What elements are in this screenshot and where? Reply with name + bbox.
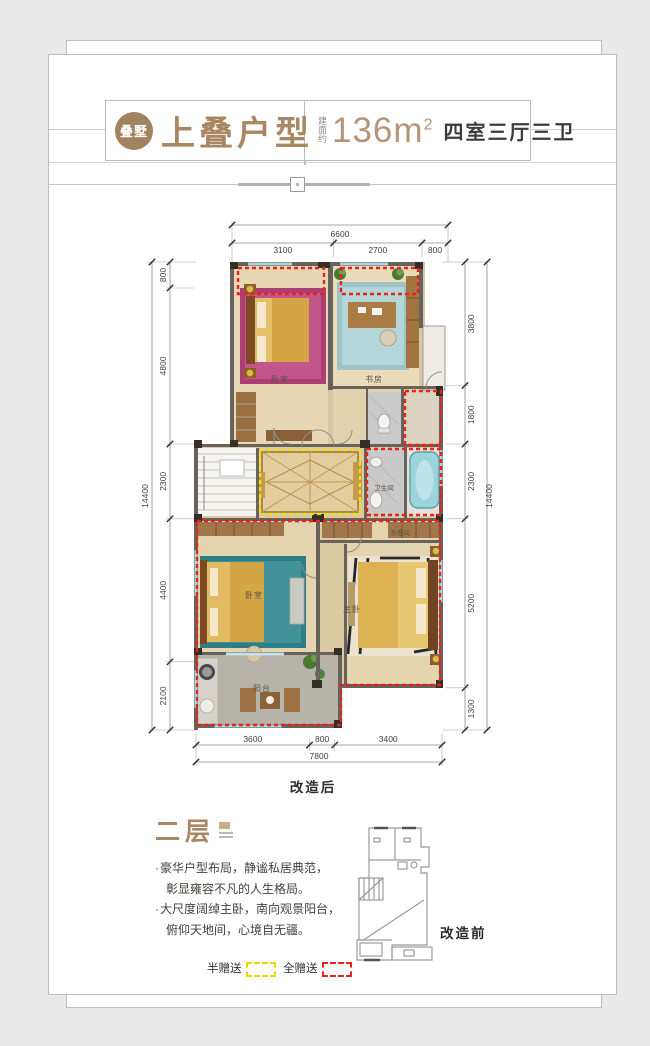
legend-full-gift-label: 全赠送 <box>283 960 318 976</box>
description-bullets: ·豪华户型布局，静谧私居典范， 彰显雍容不凡的人生格局。 ·大尺度阔绰主卧，南向… <box>155 858 380 940</box>
dim-top-seg: 800 <box>428 245 442 255</box>
room-label-bathroom: 卫生间 <box>374 483 394 492</box>
bullet-item: ·豪华户型布局，静谧私居典范， 彰显雍容不凡的人生格局。 <box>155 858 380 899</box>
dim-right-seg: 3800 <box>466 314 476 333</box>
dim-bottom-overall: 7800 <box>310 751 329 761</box>
dim-top-overall: 6600 <box>331 229 350 239</box>
bullet-dot: · <box>155 902 159 916</box>
dim-right-seg: 1300 <box>466 699 476 718</box>
dim-top-seg: 2700 <box>368 245 387 255</box>
legend-full-gift-swatch <box>322 962 352 977</box>
seal-text: 叠墅 <box>120 121 148 140</box>
dim-bottom-seg: 3400 <box>379 734 398 744</box>
dim-left-overall: 14400 <box>140 484 150 508</box>
header-box: 叠墅 上叠户型 建面约 136m2 四室三厅三卫 <box>105 100 531 161</box>
dim-bottom-seg: 800 <box>315 734 329 744</box>
area-prefix-label: 建面约 <box>318 117 329 144</box>
room-label-cloakroom: 衣帽间 <box>390 528 410 537</box>
floor-title-ornament <box>219 822 233 840</box>
plan-caption-before: 改造前 <box>440 922 487 942</box>
header-right: 建面约 136m2 四室三厅三卫 <box>305 101 575 160</box>
plan-body: 卧室 书房 卫生间 衣帽间 卧室 主卧 阳台 <box>194 262 445 730</box>
room-label-master: 主卧 <box>343 604 361 614</box>
hall-parquet <box>258 452 362 512</box>
rooms-spec: 四室三厅三卫 <box>443 116 575 145</box>
legend-half-gift-swatch <box>246 962 276 977</box>
dim-left-seg: 4800 <box>158 356 168 375</box>
dim-left-seg: 800 <box>158 268 168 282</box>
dim-right-seg: 1800 <box>466 405 476 424</box>
bullet-line: 豪华户型布局，静谧私居典范， <box>160 861 328 875</box>
room-label-bedroom-top: 卧室 <box>271 374 289 384</box>
floor-title: 二层 <box>155 820 215 846</box>
bullet-line: 大尺度阔绰主卧，南向观景阳台， <box>160 902 340 916</box>
dim-left-seg: 2100 <box>158 686 168 705</box>
room-label-balcony: 阳台 <box>253 683 271 693</box>
floor-plan-before <box>352 810 492 980</box>
room-label-bedroom-lower: 卧室 <box>245 590 263 600</box>
study-furniture <box>334 268 419 370</box>
header-left: 叠墅 上叠户型 <box>106 101 305 160</box>
area-number: 136m <box>332 111 424 150</box>
dim-right-overall: 14400 <box>484 484 494 508</box>
area-superscript: 2 <box>424 116 434 133</box>
master-bedroom-furniture <box>348 546 442 665</box>
bullet-item: ·大尺度阔绰主卧，南向观景阳台， 俯仰天地间，心境自无疆。 <box>155 899 380 940</box>
bullet-dot: · <box>155 861 159 875</box>
seal-icon: 叠墅 <box>115 112 153 150</box>
bullet-line: 彰显雍容不凡的人生格局。 <box>166 879 380 900</box>
legend-half-gift-label: 半赠送 <box>207 960 242 976</box>
divider-square-ornament <box>290 177 305 192</box>
dim-left-seg: 4400 <box>158 581 168 600</box>
page-title: 上叠户型 <box>161 106 313 155</box>
area-value: 136m2 <box>332 111 433 151</box>
dim-right-seg: 2300 <box>466 472 476 491</box>
floor-title-row: 二层 <box>155 820 233 846</box>
divider-line-upper <box>49 162 616 163</box>
bullet-line: 俯仰天地间，心境自无疆。 <box>166 920 380 941</box>
header-rule-left <box>49 129 105 130</box>
page: { "header": { "seal": "叠墅", "title": "上叠… <box>0 0 650 1046</box>
bedroom-lower-furniture <box>200 556 306 662</box>
dim-right-seg: 5200 <box>466 594 476 613</box>
room-label-study: 书房 <box>365 374 383 384</box>
dim-bottom-seg: 3600 <box>243 734 262 744</box>
dim-left-seg: 2300 <box>158 472 168 491</box>
floor-plan-after: 6600 3100 2700 800 14400 800 4800 2300 4… <box>135 205 520 815</box>
dim-top-seg: 3100 <box>273 245 292 255</box>
plan-caption-after: 改造后 <box>290 779 337 795</box>
